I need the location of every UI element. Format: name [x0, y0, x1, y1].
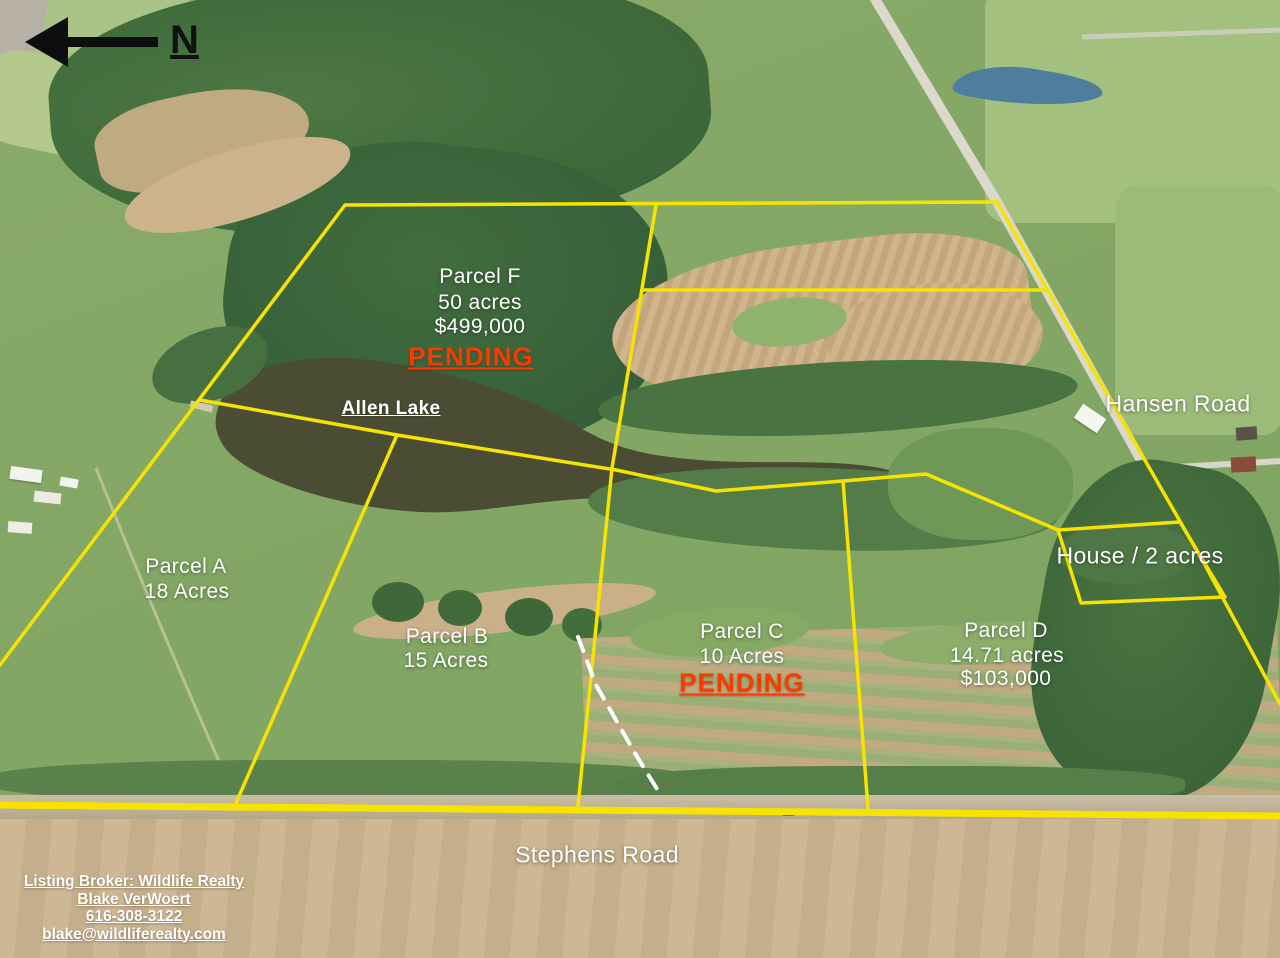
parcel-a-size: 18 Acres: [145, 580, 230, 604]
broker-name: Listing Broker: Wildlife Realty: [22, 873, 246, 891]
parcel-c-status-badge: PENDING: [679, 668, 804, 699]
boundary-parcel-b-c: [578, 468, 612, 806]
stephens-road-label: Stephens Road: [515, 842, 679, 869]
hansen-road-label: Hansen Road: [1105, 391, 1250, 418]
parcel-f-status-badge: PENDING: [408, 342, 533, 373]
north-label: N: [170, 18, 199, 63]
broker-phone: 616-308-3122: [22, 908, 246, 926]
allen-lake-label: Allen Lake: [341, 398, 440, 420]
parcel-c-name: Parcel C: [700, 620, 784, 644]
boundary-parcel-a-b: [236, 435, 397, 803]
parcel-d-size: 14.71 acres: [950, 644, 1064, 668]
broker-email: blake@wildliferealty.com: [22, 926, 246, 944]
parcel-boundaries-svg: [0, 0, 1280, 958]
parcel-c-size: 10 Acres: [700, 645, 785, 669]
house-parcel-label: House / 2 acres: [1056, 543, 1223, 570]
parcel-f-name: Parcel F: [439, 265, 520, 289]
parcel-b-name: Parcel B: [406, 625, 489, 649]
broker-agent: Blake VerWoert: [22, 891, 246, 909]
broker-info-block: Listing Broker: Wildlife Realty Blake Ve…: [22, 873, 246, 943]
parcel-f-price: $499,000: [435, 315, 526, 339]
boundary-parcel-c-d: [843, 481, 868, 808]
boundary-stephens-road-south: [0, 805, 1280, 816]
boundary-field-west: [612, 205, 656, 468]
boundary-lake-southeast: [616, 470, 1058, 530]
driveway-dashed-line: [578, 637, 662, 797]
parcel-d-name: Parcel D: [964, 619, 1048, 643]
aerial-listing-map: N Parcel F 50 acres $499,000 PENDING All…: [0, 0, 1280, 958]
parcel-f-size: 50 acres: [438, 291, 522, 315]
parcel-d-price: $103,000: [961, 667, 1052, 691]
north-arrow-icon: [25, 17, 158, 67]
parcel-a-name: Parcel A: [145, 555, 226, 579]
parcel-b-size: 15 Acres: [404, 649, 489, 673]
